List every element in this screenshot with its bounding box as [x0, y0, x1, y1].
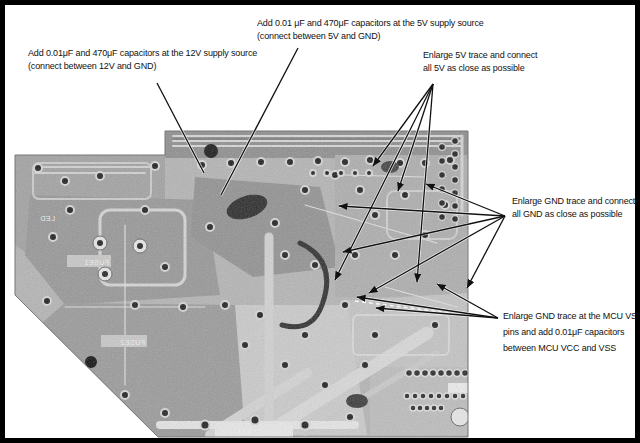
annotation-trace-5v: Enlarge 5V trace and connect all 5V as c… — [423, 49, 537, 74]
annotation-line: (connect between 12V and GND) — [28, 60, 257, 73]
annotation-line: Add 0.01μF and 470μF capacitors at the 1… — [28, 47, 257, 60]
annotation-trace-gnd: Enlarge GND trace and connect all GND as… — [512, 195, 635, 220]
annotation-line: between MCU VCC and VSS — [503, 340, 640, 356]
pcb-texture: FUSE1 FUSE2 913 LED — [5, 125, 635, 438]
annotation-line: (connect between 5V and GND) — [257, 30, 484, 43]
annotation-line: Enlarge 5V trace and connect — [423, 49, 537, 62]
figure-frame: FUSE1 FUSE2 913 LED — [0, 0, 640, 443]
annotation-cap-5v: Add 0.01 μF and 470μF capacitors at the … — [257, 17, 484, 42]
annotation-line: pins and add 0.01μF capacitors — [503, 324, 640, 340]
annotation-cap-12v: Add 0.01μF and 470μF capacitors at the 1… — [28, 47, 257, 72]
annotation-line: all 5V as close as possible — [423, 62, 537, 75]
annotation-line: all GND as close as possible — [512, 208, 635, 221]
annotation-line: Enlarge GND trace and connect — [512, 195, 635, 208]
photo-grain — [5, 125, 635, 438]
annotation-mcu-vss: Enlarge GND trace at the MCU VSS pins an… — [503, 308, 640, 356]
annotation-line: Enlarge GND trace at the MCU VSS — [503, 308, 640, 324]
annotation-line: Add 0.01 μF and 470μF capacitors at the … — [257, 17, 484, 30]
